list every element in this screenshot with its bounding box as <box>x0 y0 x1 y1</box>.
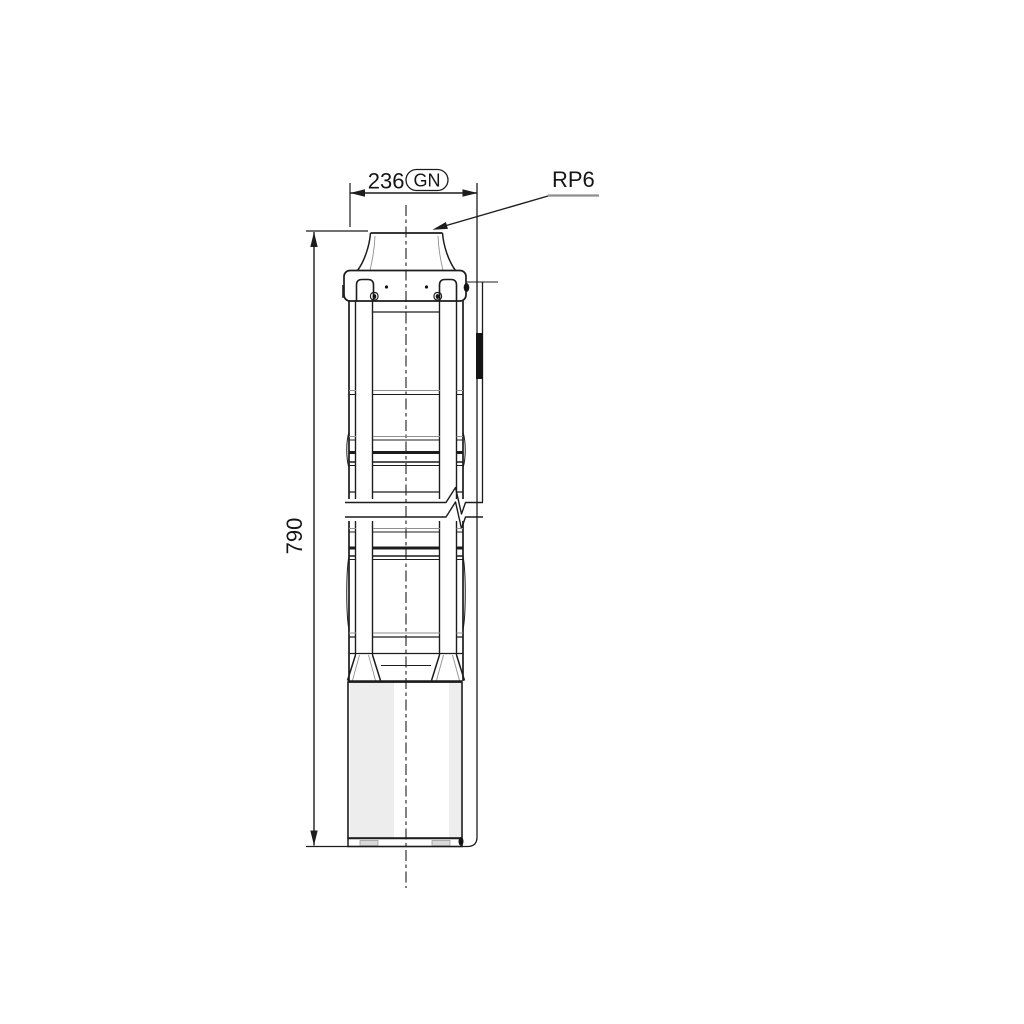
height-dimension-label: 790 <box>282 518 307 555</box>
flange-screw-dot-left <box>385 285 388 288</box>
arrowhead-up-icon <box>310 232 317 247</box>
width-dimension-label: 236 <box>368 169 405 194</box>
arrowhead-down-icon <box>310 831 317 846</box>
flange-screw-dot-right <box>425 285 428 288</box>
pump-outline <box>306 183 498 847</box>
arrowhead-left-icon <box>350 189 365 196</box>
cable-clamp-bolt <box>464 283 470 292</box>
connection-callout: RP6 <box>433 167 600 230</box>
pump-dimensional-drawing: 236 GN RP6 790 <box>0 0 1024 1024</box>
arrowhead-right-icon <box>463 189 478 196</box>
leader-arrowhead-icon <box>433 222 448 230</box>
right-strap-hook <box>440 280 457 302</box>
left-strap-foot <box>348 655 381 681</box>
leader-line <box>436 196 548 229</box>
top-flange <box>343 271 498 302</box>
cable-clamp <box>476 333 483 379</box>
technical-drawing-canvas: 236 GN RP6 790 <box>0 0 1024 1024</box>
width-dimension: 236 GN <box>350 169 478 228</box>
gn-badge-label: GN <box>414 171 441 191</box>
connection-label: RP6 <box>552 167 595 192</box>
right-strap-foot <box>432 655 465 681</box>
